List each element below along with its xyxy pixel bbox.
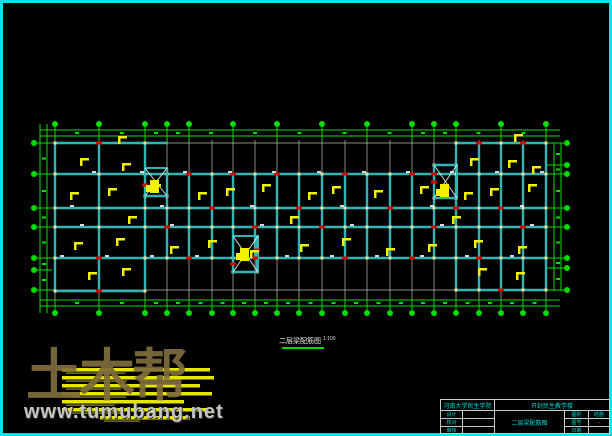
titleblock-signoff-table: 设计 校对 审核 xyxy=(441,411,495,433)
plan-scale-label: 1:100 xyxy=(323,336,336,342)
titleblock-value-audit xyxy=(463,427,494,434)
titleblock-project: 开封民生教学楼 xyxy=(495,400,609,410)
stair-cross xyxy=(145,165,457,272)
titleblock-label-design: 设计 xyxy=(441,411,463,418)
titleblock-organization: 河南大学民生学院 xyxy=(441,400,495,410)
titleblock-value-category: 结施 xyxy=(589,411,609,418)
titleblock-value-number: - xyxy=(589,419,609,426)
plan-title-text: 二层梁配筋图 xyxy=(279,338,321,345)
titleblock-label-audit: 审核 xyxy=(441,427,463,434)
grid-bubbles xyxy=(31,121,570,316)
title-block: 河南大学民生学院 开封民生教学楼 设计 校对 审核 二层梁配筋图 xyxy=(440,399,610,434)
cad-drawing-screen: 二层梁配筋图1:100 土木帮 www.tumubang.net 河南大学民生学… xyxy=(0,0,612,436)
titleblock-label-number: 图号 xyxy=(565,419,589,426)
titleblock-meta-table: 图别 结施 图号 - 日期 xyxy=(565,411,609,433)
dimension-ticks xyxy=(42,132,560,304)
titleblock-drawing-name: 二层梁配筋图 xyxy=(495,411,565,433)
titleblock-label-date: 日期 xyxy=(565,427,589,434)
watermark-brand: 土木帮 xyxy=(26,348,185,404)
titleblock-label-check: 校对 xyxy=(441,419,463,426)
watermark-site-url: www.tumubang.net xyxy=(24,402,224,422)
column-marks xyxy=(96,142,526,293)
titleblock-value-check xyxy=(463,419,494,426)
titleblock-value-design xyxy=(463,411,494,418)
titleblock-label-category: 图别 xyxy=(565,411,589,418)
plan-title: 二层梁配筋图1:100 xyxy=(279,336,336,346)
titleblock-value-date xyxy=(589,427,609,434)
